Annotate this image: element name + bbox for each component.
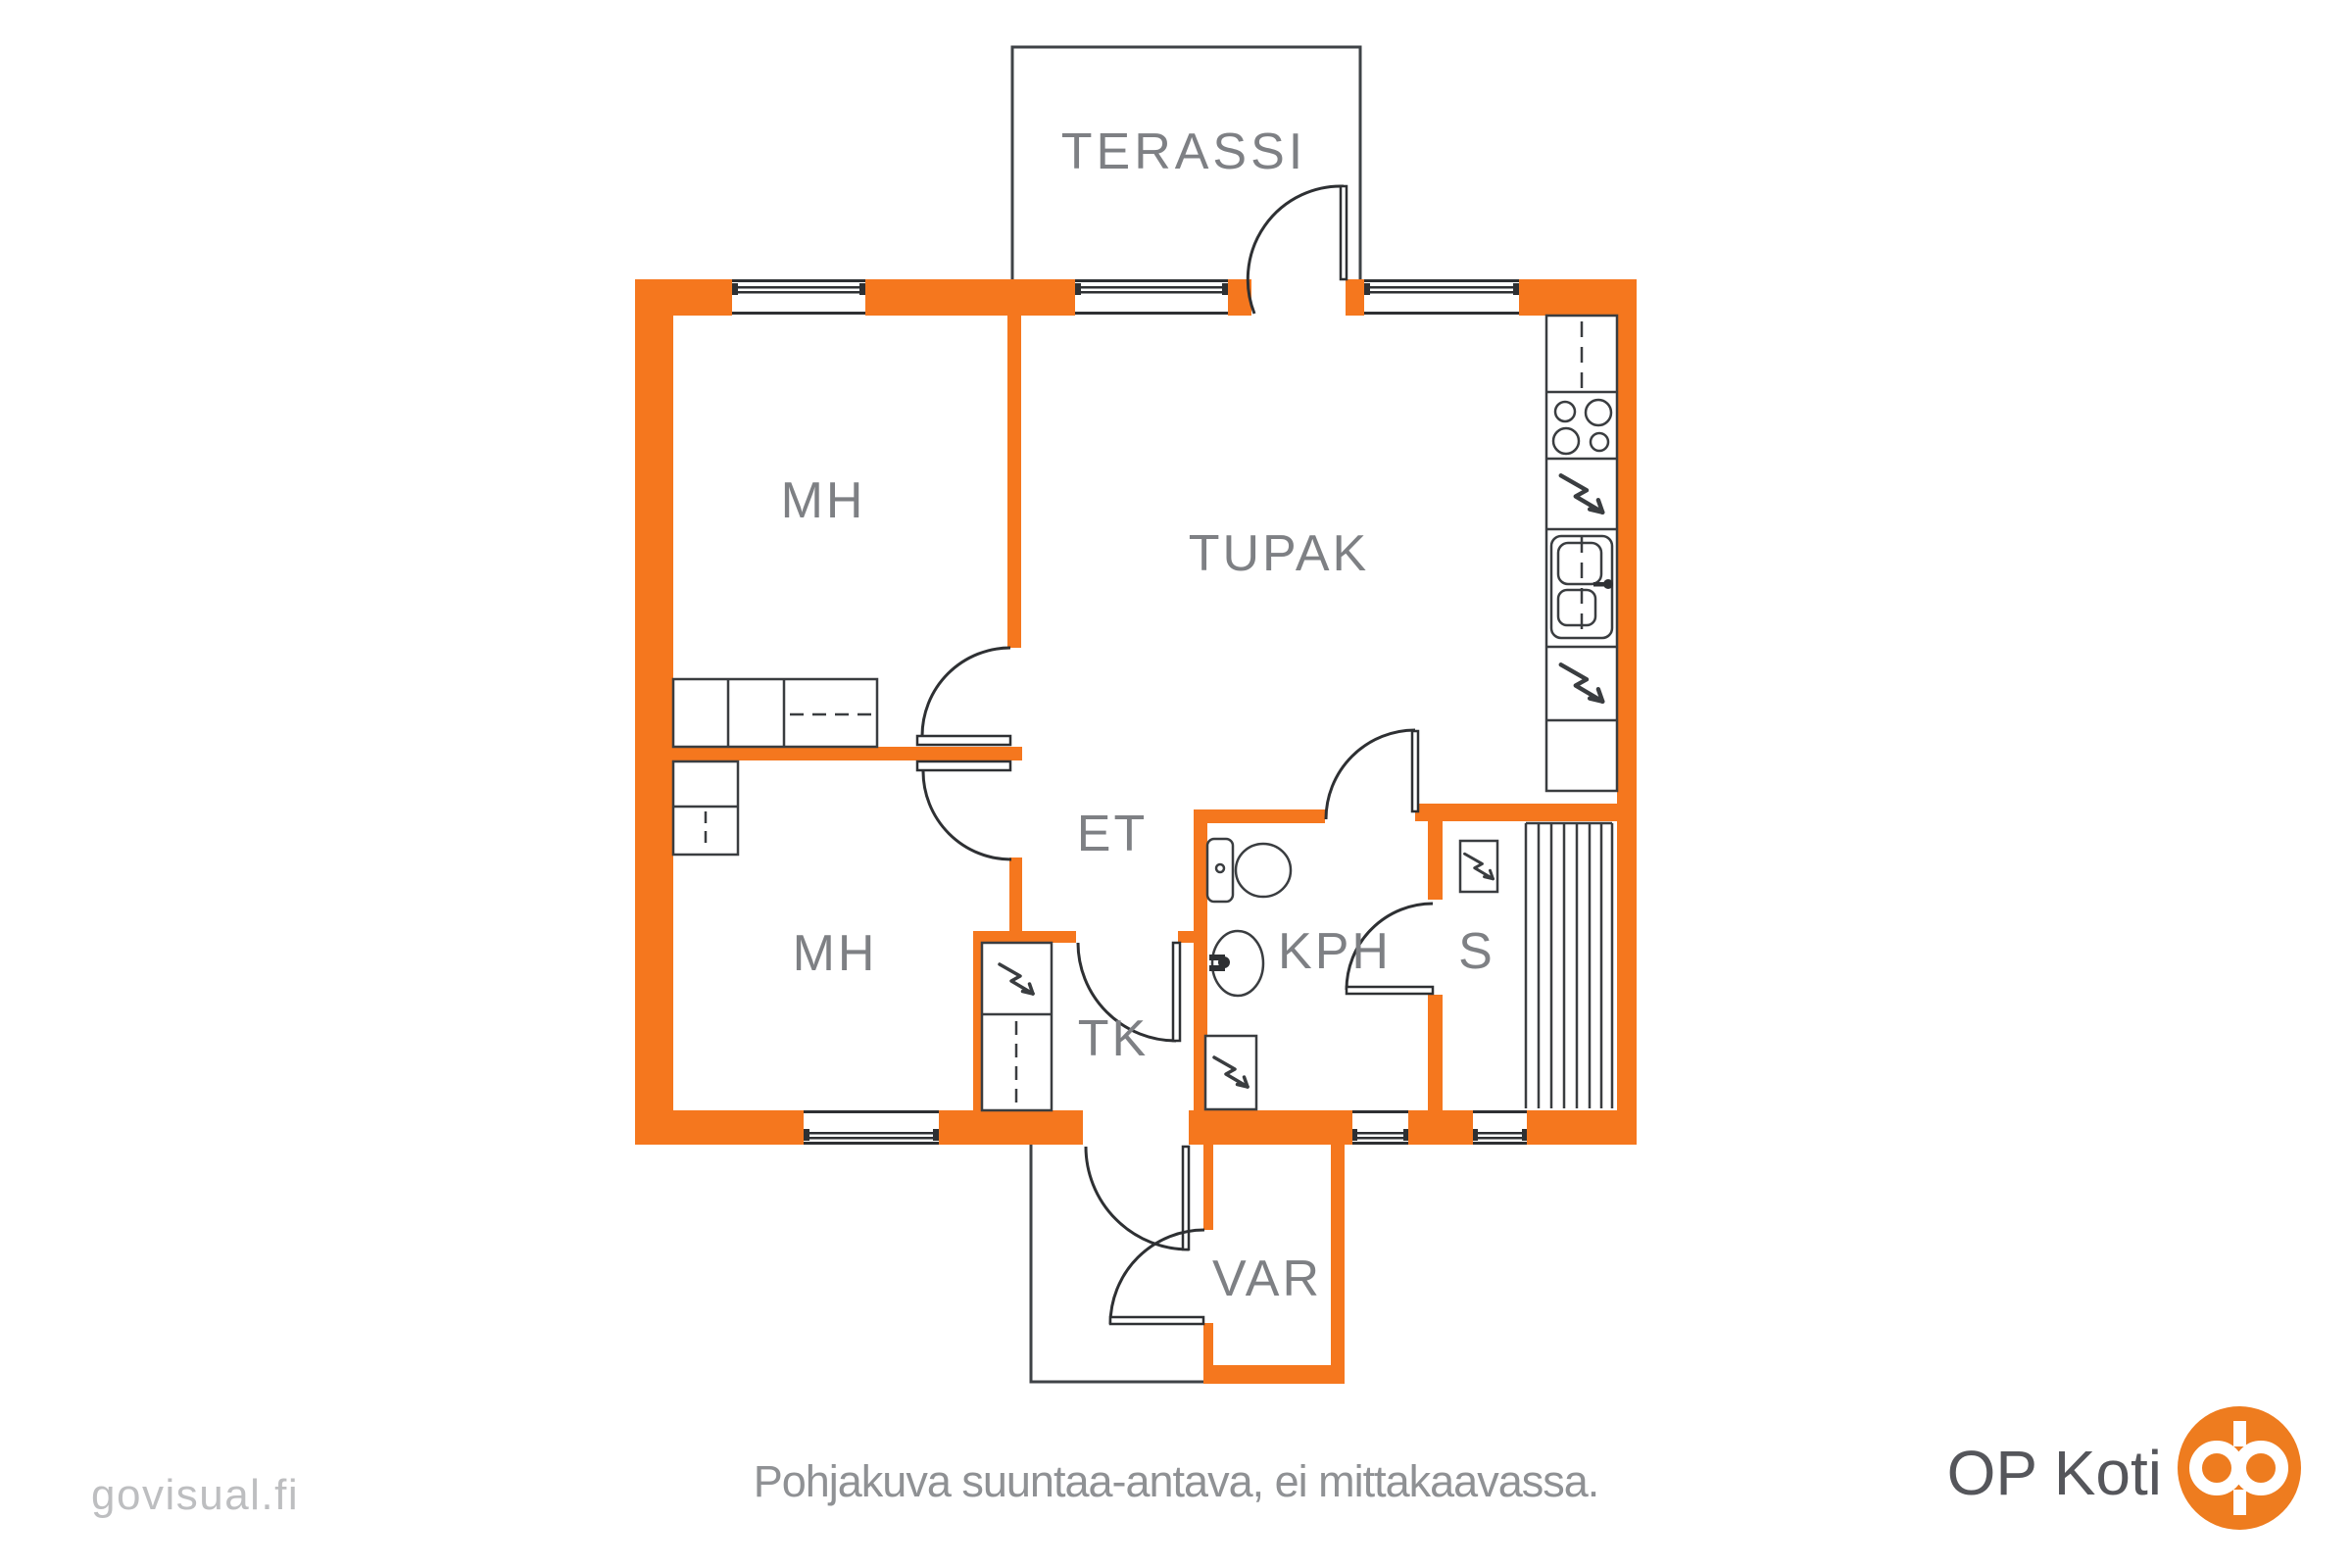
sauna-heater-icon	[1460, 841, 1497, 892]
wall-segment	[1203, 1365, 1345, 1384]
window	[804, 1110, 939, 1145]
door-arc	[1110, 1230, 1204, 1324]
door-leaf	[1110, 1317, 1203, 1324]
wall-segment	[1415, 804, 1637, 821]
door-leaf	[917, 761, 1010, 770]
window	[1352, 1110, 1408, 1145]
wall-segment	[1428, 821, 1443, 900]
door-arc	[923, 771, 1011, 859]
wall-segment	[1007, 316, 1021, 648]
door-arc	[922, 648, 1010, 736]
porch-outline	[1031, 1145, 1203, 1382]
room-label-s: S	[1458, 923, 1495, 980]
wall-segment	[1009, 857, 1022, 933]
door-leaf	[1173, 943, 1180, 1041]
door-arc	[1326, 730, 1415, 819]
wall-segment	[973, 943, 982, 1110]
washbasin-icon	[1209, 931, 1263, 996]
door-leaf	[1341, 186, 1347, 279]
door-leaf	[1183, 1147, 1189, 1249]
wardrobe	[673, 761, 738, 855]
wall-segment	[939, 1110, 1083, 1145]
washing-machine-icon	[1205, 1036, 1256, 1109]
room-label-et: ET	[1077, 806, 1148, 862]
kitchen-sink-icon	[1551, 536, 1613, 639]
door-arc	[1248, 186, 1344, 314]
wall-segment	[673, 747, 1022, 760]
wall-segment	[1189, 1110, 1352, 1145]
door-leaf	[1412, 731, 1418, 811]
window	[1075, 279, 1228, 316]
floor-plan-canvas: TERASSI MH TUPAK ET MH TK KPH S VAR govi…	[0, 0, 2352, 1568]
wall-segment	[635, 1110, 804, 1145]
wall-segment	[865, 279, 1075, 316]
sauna-benches	[1526, 823, 1612, 1108]
window	[732, 279, 865, 316]
wall-segment	[1346, 279, 1364, 316]
utility-closet	[982, 943, 1052, 1110]
room-label-tupak: TUPAK	[1189, 525, 1370, 582]
caption: Pohjakuva suuntaa-antava, ei mittakaavas…	[754, 1456, 1599, 1506]
door-leaf	[1347, 987, 1433, 994]
room-label-terassi: TERASSI	[1061, 123, 1307, 180]
window	[1364, 279, 1519, 316]
wall-segment	[635, 279, 673, 1145]
wall-segment	[1331, 1145, 1345, 1384]
wall-segment	[1408, 1110, 1473, 1145]
wall-segment	[1194, 809, 1325, 823]
furniture	[673, 316, 1617, 1110]
wall-segment	[973, 931, 1076, 943]
op-logo-icon	[2178, 1406, 2301, 1530]
wall-segment	[1203, 1145, 1213, 1230]
door-leaf	[917, 736, 1010, 745]
wardrobe	[673, 679, 877, 747]
room-label-mh-lower: MH	[793, 925, 878, 982]
wall-segment	[1527, 1110, 1637, 1145]
room-label-kph: KPH	[1278, 923, 1392, 980]
brand-name: OP Koti	[1947, 1438, 2162, 1508]
room-label-tk: TK	[1078, 1010, 1149, 1067]
toilet-icon	[1207, 839, 1291, 902]
wall-segment	[1428, 995, 1443, 1110]
room-label-mh-upper: MH	[781, 472, 866, 529]
room-label-var: VAR	[1212, 1250, 1322, 1307]
window	[1473, 1110, 1527, 1145]
watermark: govisual.fi	[91, 1471, 299, 1519]
floor-plan-page: TERASSI MH TUPAK ET MH TK KPH S VAR govi…	[0, 0, 2352, 1568]
wall-segment	[1617, 279, 1637, 1145]
